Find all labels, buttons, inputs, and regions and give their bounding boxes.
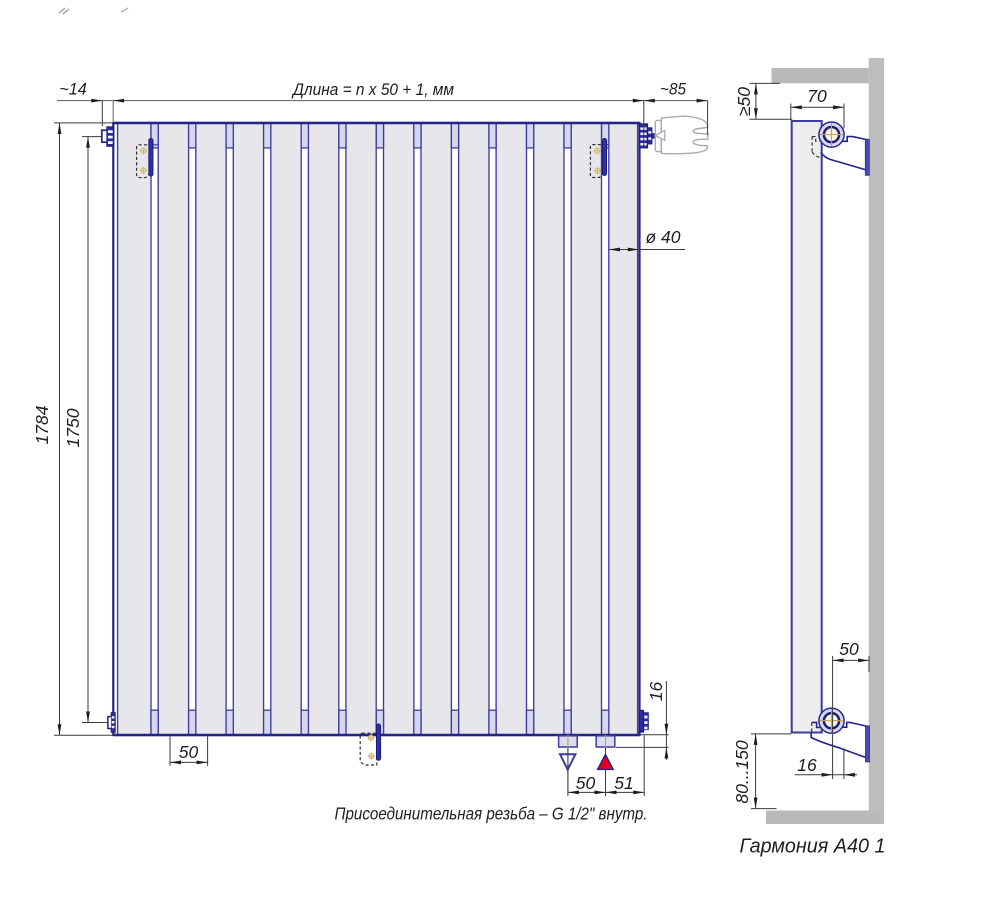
svg-text:1784: 1784 bbox=[32, 405, 52, 444]
svg-text:50: 50 bbox=[179, 742, 199, 762]
svg-text:~85: ~85 bbox=[660, 80, 686, 99]
svg-text:Длина = n x 50 + 1, мм: Длина = n x 50 + 1, мм bbox=[291, 81, 454, 99]
svg-text:51: 51 bbox=[614, 773, 633, 793]
svg-text:ø 40: ø 40 bbox=[645, 227, 680, 247]
svg-text:Гармония А40 1: Гармония А40 1 bbox=[740, 836, 886, 858]
svg-text:≥50: ≥50 bbox=[734, 87, 754, 116]
svg-text:50: 50 bbox=[839, 639, 859, 659]
svg-text:~14: ~14 bbox=[59, 80, 87, 99]
svg-text:1750: 1750 bbox=[63, 408, 83, 447]
svg-text:16: 16 bbox=[646, 682, 666, 702]
svg-text:50: 50 bbox=[576, 773, 596, 793]
svg-text:80...150: 80...150 bbox=[732, 740, 752, 804]
svg-text:70: 70 bbox=[807, 86, 827, 106]
svg-text:Присоединительная резьба – G 1: Присоединительная резьба – G 1/2" внутр. bbox=[335, 804, 648, 824]
svg-text:16: 16 bbox=[797, 755, 817, 775]
